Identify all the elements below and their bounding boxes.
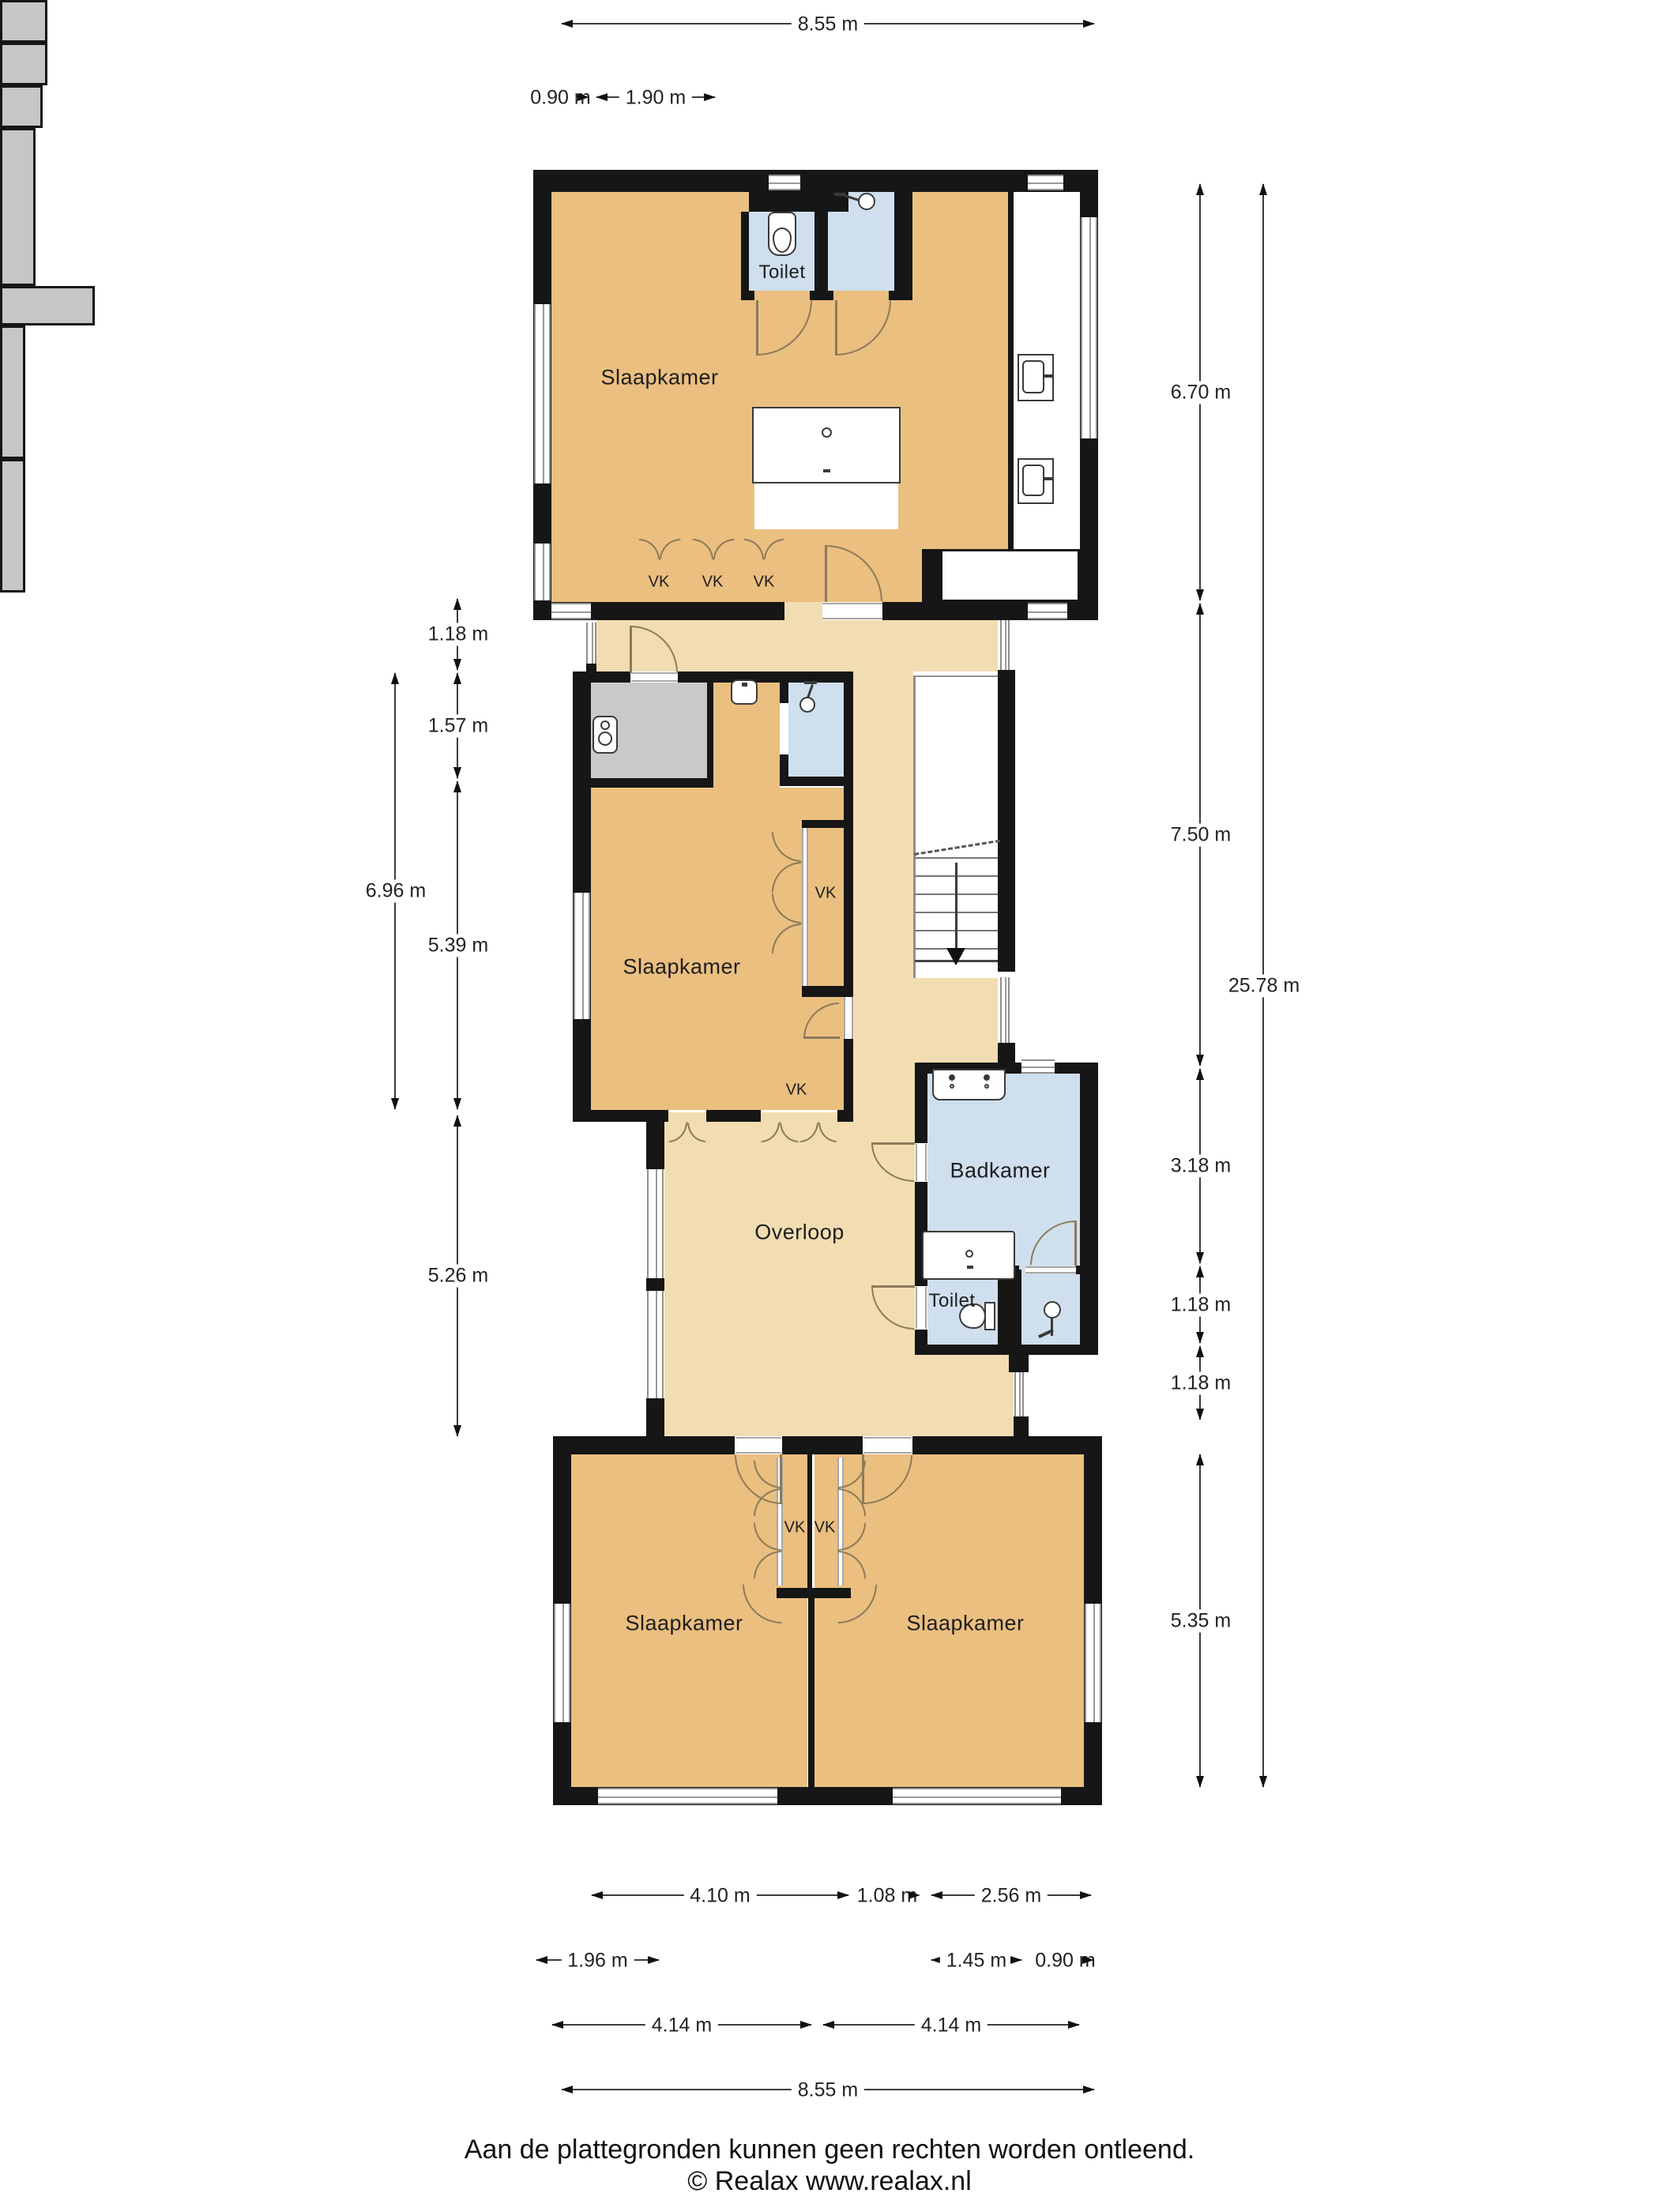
tap-icon — [949, 1074, 955, 1081]
window — [1000, 977, 1010, 1043]
room-label: Slaapkamer — [600, 366, 718, 390]
wall — [837, 1110, 853, 1122]
wall — [780, 777, 853, 786]
dimension: 8.55 m — [562, 23, 1094, 24]
closet-vk — [0, 286, 95, 325]
dimension: 5.26 m — [457, 1115, 458, 1436]
hallway — [915, 1355, 1014, 1436]
toilet-tank-icon — [984, 1302, 995, 1330]
wall — [706, 1110, 761, 1122]
closet-vk — [0, 459, 25, 592]
copyright-text: © Realax www.realax.nl — [0, 2166, 1659, 2197]
tap-icon — [984, 1074, 990, 1081]
tap-icon — [1043, 374, 1052, 378]
door-leaf — [871, 1285, 915, 1288]
window — [551, 603, 591, 619]
shower-head-icon — [858, 193, 875, 210]
wall — [707, 683, 713, 778]
room-label: Slaapkamer — [906, 1612, 1024, 1636]
stair-arrow-head-icon — [946, 948, 965, 965]
door-opening — [844, 997, 853, 1039]
bathtub-detail-icon — [967, 1266, 973, 1269]
room-label: Overloop — [754, 1221, 845, 1245]
wall — [814, 212, 828, 291]
closet-vk — [0, 43, 47, 85]
wall — [1008, 192, 1014, 549]
dimension: 2.56 m — [931, 1894, 1091, 1896]
door-leaf — [1074, 1221, 1077, 1266]
room-label: Slaapkamer — [625, 1612, 743, 1636]
door-leaf — [862, 1454, 864, 1504]
wall — [591, 778, 713, 788]
hallway — [664, 1112, 853, 1436]
shower-room-middle — [788, 681, 844, 777]
closet-label: VK — [702, 574, 724, 592]
closet-track — [802, 828, 808, 986]
closet-vk — [0, 128, 36, 286]
window — [893, 1788, 1061, 1804]
door-leaf — [780, 1454, 782, 1504]
window — [554, 1604, 570, 1722]
wall — [1076, 1266, 1080, 1274]
bed-detail-icon — [823, 469, 830, 472]
hallway — [853, 1063, 915, 1436]
hallway — [853, 671, 913, 978]
window — [586, 623, 596, 664]
door-opening — [916, 1287, 927, 1329]
shower-head-icon — [799, 697, 815, 713]
tap-icon — [1043, 477, 1052, 480]
tap-icon — [950, 1084, 954, 1089]
door-leaf — [756, 300, 758, 355]
bed-sheet — [754, 483, 898, 529]
window — [534, 544, 551, 600]
hallway — [853, 978, 998, 1063]
wall — [998, 1270, 1021, 1345]
wall — [807, 1454, 812, 1588]
shower-head-icon — [1044, 1301, 1061, 1319]
door-leaf — [871, 1142, 915, 1145]
boiler-dial-icon — [598, 732, 612, 746]
closet-label: VK — [786, 1082, 807, 1100]
dimension: 8.55 m — [562, 2089, 1094, 2090]
closet-vk — [0, 325, 25, 459]
wall — [1080, 1063, 1098, 1355]
dimension: 5.39 m — [457, 781, 458, 1109]
dimension: 0.90 m — [532, 96, 589, 98]
closet-vk — [0, 85, 43, 128]
door-opening — [631, 672, 678, 682]
room-label: Toilet — [758, 261, 805, 284]
wall — [915, 1063, 927, 1143]
closet-label: VK — [814, 1519, 836, 1537]
wall — [646, 1398, 664, 1436]
dimension: 1.18 m — [1199, 1266, 1201, 1343]
wall — [894, 188, 912, 291]
stair-direction-arrow — [955, 863, 957, 950]
wall — [889, 291, 912, 300]
dimension: 1.90 m — [596, 96, 715, 98]
dimension: 1.57 m — [457, 673, 458, 778]
window — [1085, 1604, 1101, 1722]
window — [769, 175, 800, 190]
wall — [802, 820, 853, 828]
dimension: 3.18 m — [1199, 1069, 1201, 1263]
window — [1081, 217, 1097, 438]
window — [1021, 1059, 1055, 1074]
window — [1028, 175, 1063, 190]
dimension: 1.18 m — [1199, 1346, 1201, 1420]
door-opening — [863, 1437, 912, 1454]
room-label: Toilet — [928, 1290, 975, 1312]
closet-label: VK — [754, 574, 775, 592]
wall — [808, 1598, 814, 1787]
sink-basin-icon — [1022, 465, 1044, 496]
wall — [998, 670, 1015, 972]
door-opening — [1025, 1266, 1076, 1273]
wall — [749, 291, 754, 300]
wall — [912, 1436, 1102, 1454]
double-sink-icon — [932, 1069, 1006, 1100]
wall — [915, 1345, 1098, 1355]
window — [534, 304, 551, 483]
dimension: 6.70 m — [1199, 184, 1201, 600]
door-opening — [822, 603, 882, 619]
closet-vk — [0, 0, 47, 43]
dimension: 7.50 m — [1199, 604, 1201, 1066]
wall — [741, 212, 749, 300]
door-opening — [735, 1437, 781, 1454]
shower-valve-icon — [834, 193, 845, 196]
disclaimer-text: Aan de plattegronden kunnen geen rechten… — [0, 2135, 1659, 2165]
wall — [553, 1436, 735, 1454]
dimension: 25.78 m — [1262, 184, 1264, 1787]
door-leaf — [803, 1036, 840, 1039]
wall — [844, 1039, 853, 1112]
boiler-dial-icon — [600, 720, 610, 730]
bed-detail-icon — [822, 427, 832, 438]
door-opening — [916, 1144, 927, 1181]
window — [574, 893, 590, 1019]
closet-label: VK — [649, 574, 670, 592]
wall — [1014, 1355, 1029, 1372]
dimension: 4.14 m — [823, 2024, 1079, 2026]
tap-icon — [984, 1084, 989, 1089]
hall-passage — [784, 602, 822, 620]
door-leaf — [835, 300, 837, 355]
sink-basin-icon — [1022, 360, 1044, 393]
dimension: 0.90 m — [1037, 1959, 1093, 1961]
window — [1000, 620, 1010, 670]
bathtub-drain-icon — [965, 1250, 973, 1258]
dimension: 4.10 m — [592, 1894, 848, 1896]
stair-tread — [915, 857, 998, 859]
tap-icon — [742, 683, 747, 687]
wall — [573, 1110, 668, 1122]
wall — [844, 671, 853, 997]
closet-label: VK — [784, 1519, 806, 1537]
dimension: 1.18 m — [457, 599, 458, 670]
wall — [782, 1436, 863, 1454]
shower-hose-icon — [1051, 1317, 1053, 1336]
closet-label: VK — [815, 885, 837, 903]
dimension: 1.96 m — [536, 1959, 659, 1961]
window — [1014, 1372, 1024, 1416]
dimension: 1.45 m — [931, 1959, 1021, 1961]
stair-void-landing — [940, 549, 1080, 602]
wall — [922, 549, 940, 620]
dimension: 4.14 m — [552, 2024, 811, 2026]
door-leaf — [630, 626, 632, 673]
dimension: 5.35 m — [1199, 1454, 1201, 1787]
room-label: Badkamer — [950, 1159, 1050, 1183]
floor-plan: Slaapkamer Toilet VK VK VK Overloop — [0, 0, 1659, 2212]
wall — [802, 986, 853, 997]
door-leaf — [825, 545, 827, 602]
wall — [780, 681, 788, 703]
dimension: 1.08 m — [855, 1894, 920, 1896]
wall — [646, 1278, 664, 1291]
wall — [573, 671, 591, 1112]
wall — [678, 671, 853, 683]
dimension: 6.96 m — [394, 673, 396, 1109]
wall — [810, 291, 833, 300]
window — [1028, 603, 1067, 619]
window — [598, 1788, 777, 1804]
room-label: Slaapkamer — [623, 955, 740, 980]
shower-valve-icon — [804, 681, 817, 684]
